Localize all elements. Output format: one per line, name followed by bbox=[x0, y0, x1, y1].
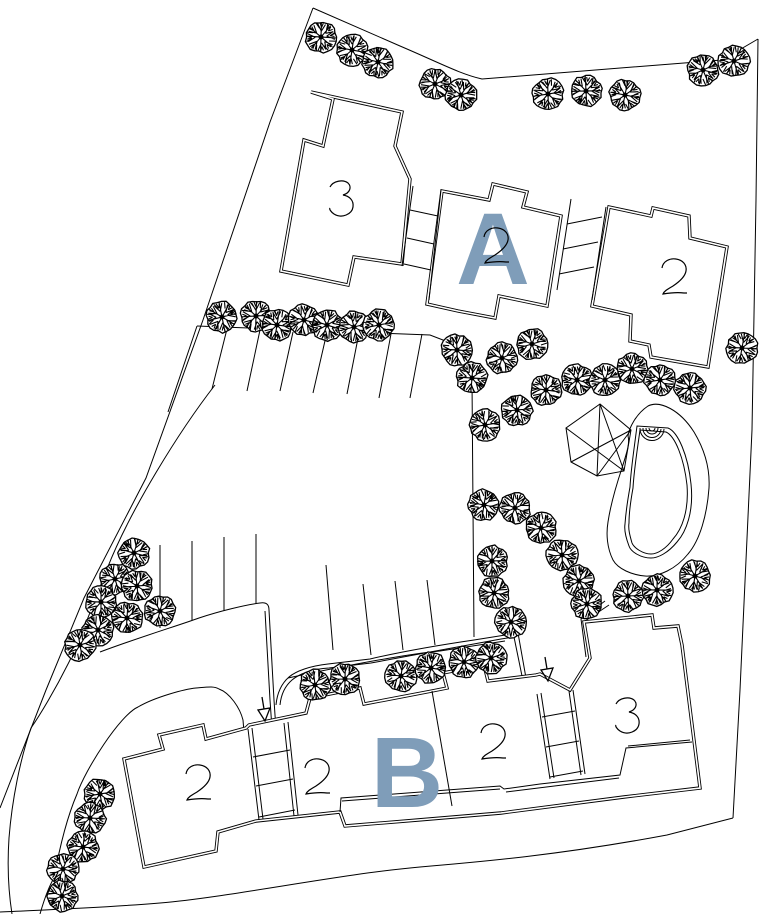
svg-text:B: B bbox=[371, 717, 443, 829]
svg-text:A: A bbox=[456, 192, 530, 306]
